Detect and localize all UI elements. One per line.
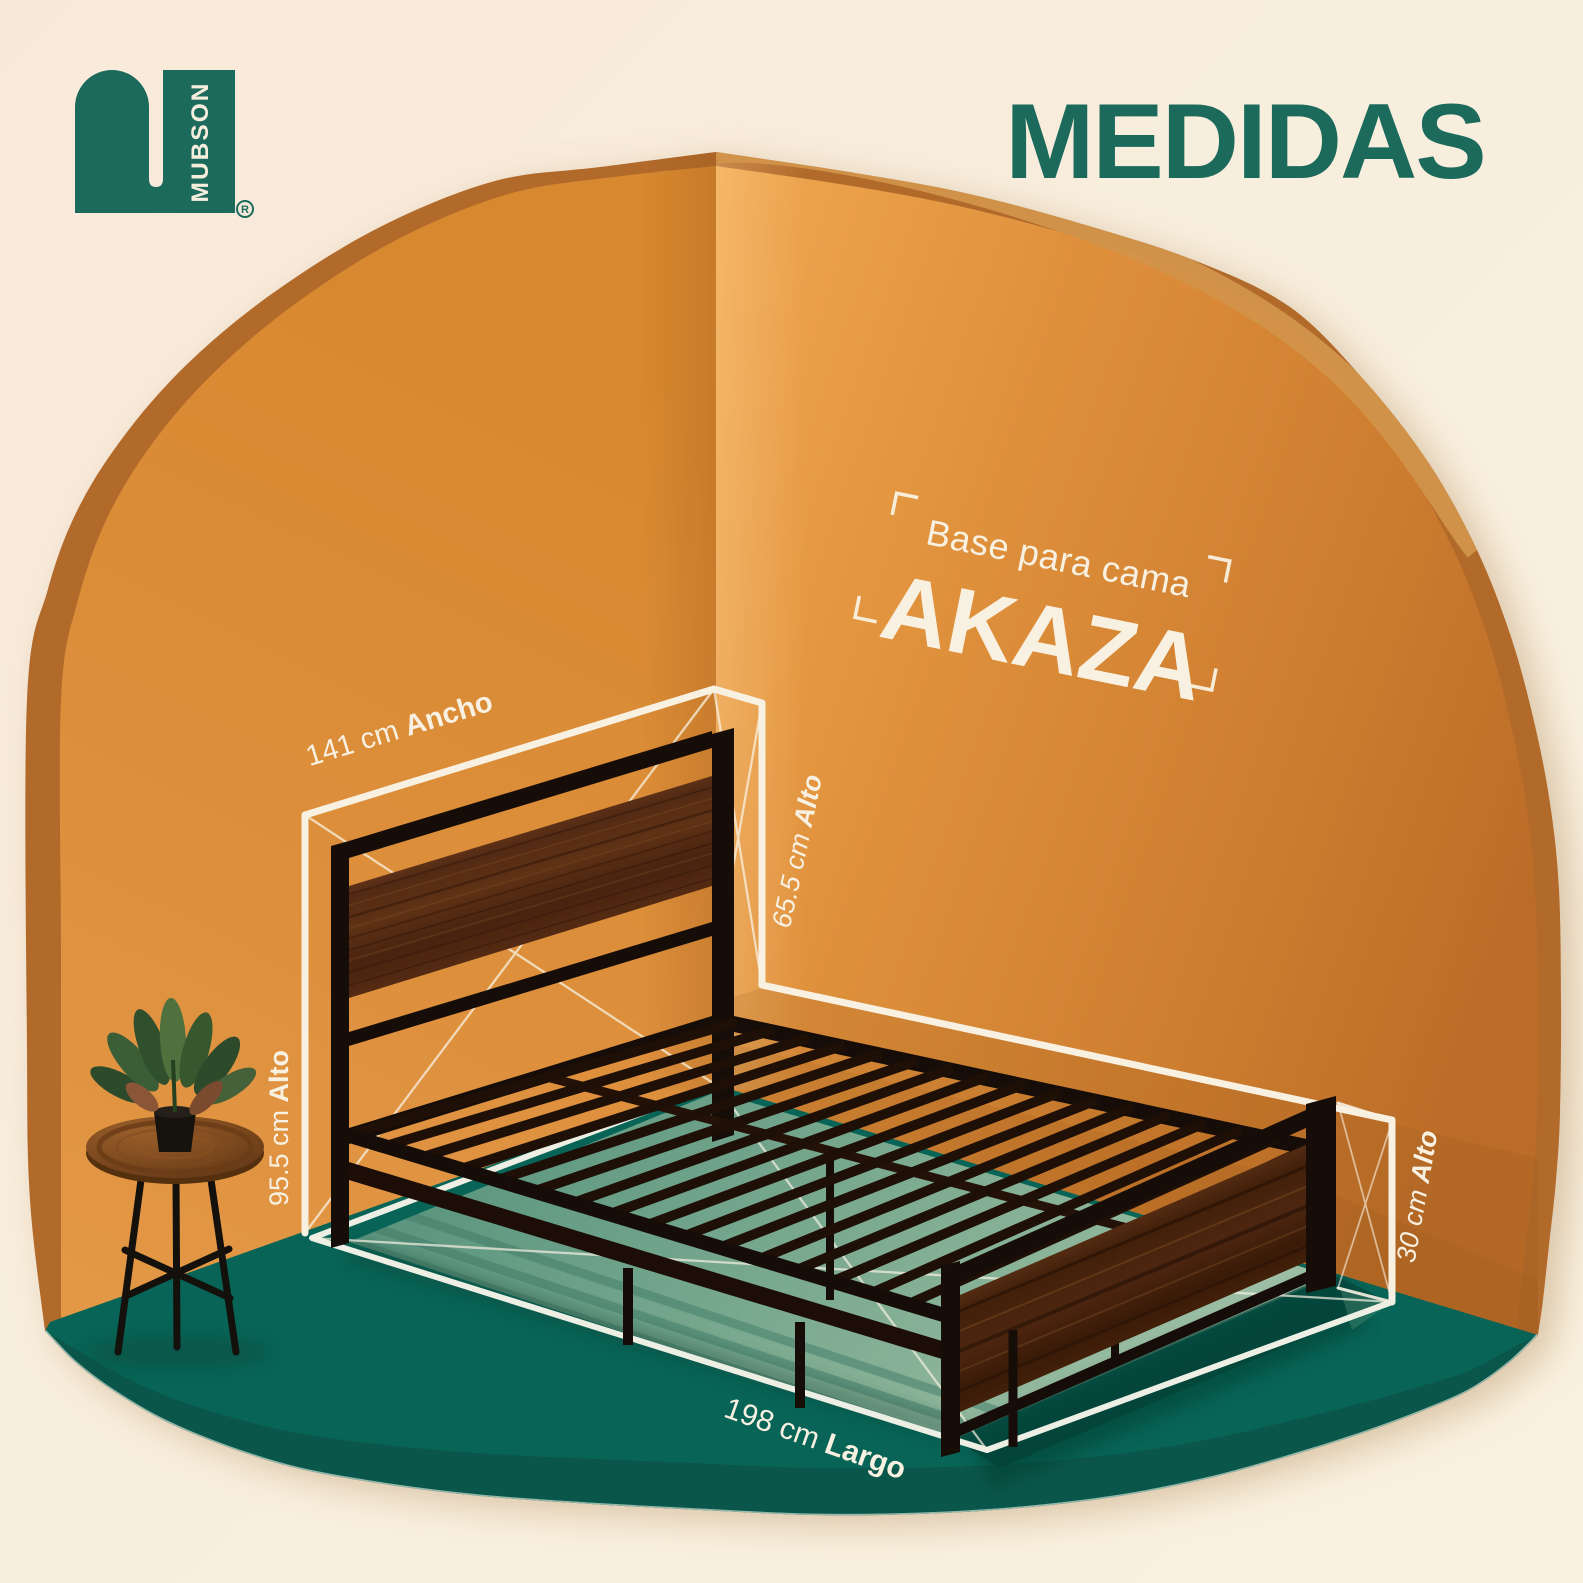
svg-text:95.5 cm Alto: 95.5 cm Alto bbox=[264, 1050, 294, 1206]
svg-text:R: R bbox=[241, 204, 249, 216]
svg-text:MUBSON: MUBSON bbox=[187, 82, 214, 203]
svg-text:MEDIDAS: MEDIDAS bbox=[1005, 81, 1484, 201]
